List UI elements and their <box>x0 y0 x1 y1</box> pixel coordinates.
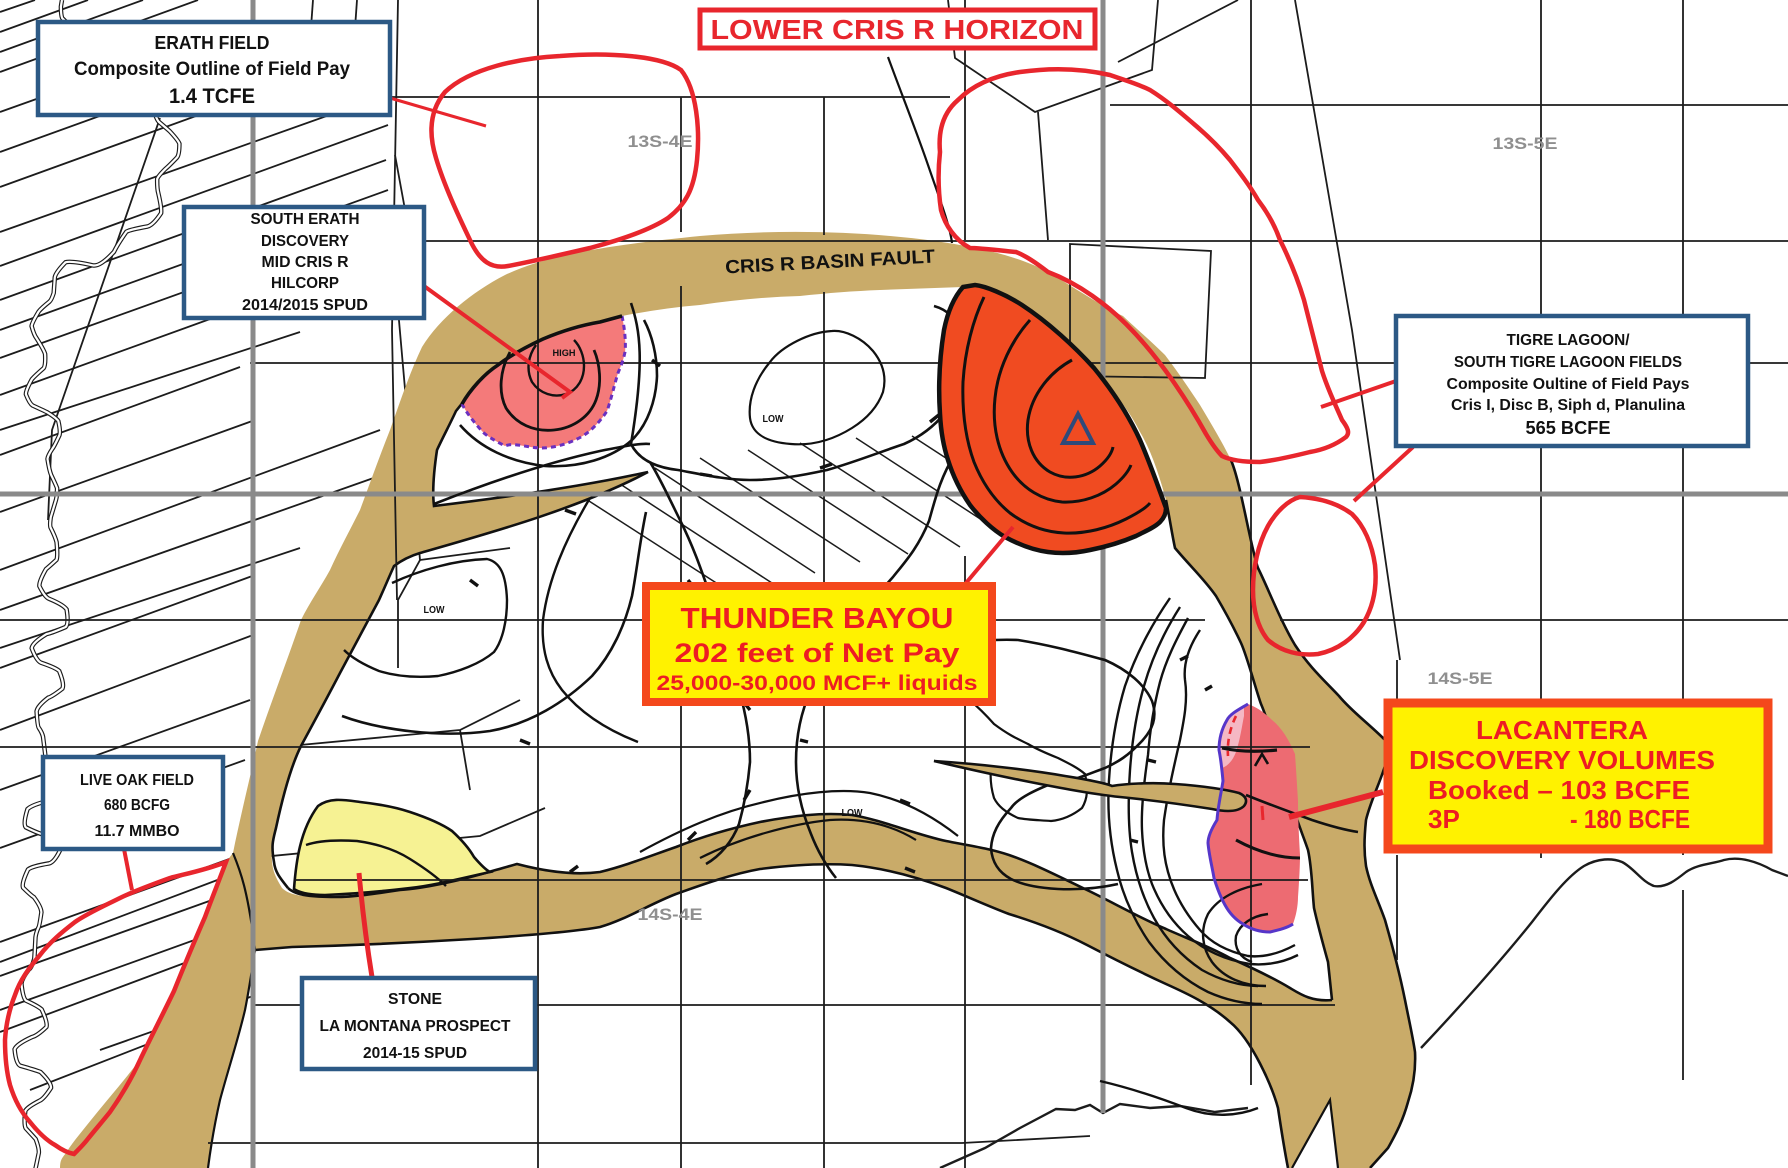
svg-text:SOUTH ERATH: SOUTH ERATH <box>251 211 360 228</box>
svg-text:TIGRE LAGOON/: TIGRE LAGOON/ <box>1507 332 1631 349</box>
svg-text:DISCOVERY VOLUMES: DISCOVERY VOLUMES <box>1409 745 1715 775</box>
svg-text:LA MONTANA PROSPECT: LA MONTANA PROSPECT <box>320 1018 511 1035</box>
svg-text:25,000-30,000 MCF+ liquids: 25,000-30,000 MCF+ liquids <box>657 672 978 695</box>
svg-text:HIGH: HIGH <box>553 348 576 358</box>
svg-text:Composite Outline of Field Pay: Composite Outline of Field Pay <box>74 59 350 80</box>
svg-text:LOW: LOW <box>763 414 785 425</box>
svg-text:13S-4E: 13S-4E <box>628 132 693 151</box>
svg-text:ERATH FIELD: ERATH FIELD <box>155 33 270 53</box>
svg-text:LACANTERA: LACANTERA <box>1476 715 1648 745</box>
svg-text:LOWER CRIS R HORIZON: LOWER CRIS R HORIZON <box>711 14 1084 45</box>
svg-text:HILCORP: HILCORP <box>271 275 339 292</box>
svg-text:14S-4E: 14S-4E <box>638 905 703 924</box>
svg-text:565 BCFE: 565 BCFE <box>1526 418 1611 438</box>
svg-text:Booked – 103 BCFE: Booked – 103 BCFE <box>1428 775 1690 805</box>
svg-text:MID CRIS R: MID CRIS R <box>262 254 349 271</box>
svg-text:LOW: LOW <box>842 808 864 819</box>
svg-text:3P: 3P <box>1428 804 1460 834</box>
svg-text:14S-5E: 14S-5E <box>1428 669 1493 688</box>
svg-text:Composite Oultine of Field Pay: Composite Oultine of Field Pays <box>1447 376 1690 393</box>
svg-text:THUNDER BAYOU: THUNDER BAYOU <box>681 603 954 635</box>
svg-text:11.7 MMBO: 11.7 MMBO <box>95 823 180 840</box>
svg-text:2014-15 SPUD: 2014-15 SPUD <box>363 1045 467 1062</box>
svg-text:- 180 BCFE: - 180 BCFE <box>1570 804 1690 834</box>
svg-text:13S-5E: 13S-5E <box>1493 134 1558 153</box>
svg-text:DISCOVERY: DISCOVERY <box>261 233 349 250</box>
svg-text:Cris I, Disc B, Siph d, Planul: Cris I, Disc B, Siph d, Planulina <box>1451 397 1685 414</box>
svg-text:SOUTH TIGRE LAGOON FIELDS: SOUTH TIGRE LAGOON FIELDS <box>1454 354 1682 371</box>
svg-text:2014/2015 SPUD: 2014/2015 SPUD <box>242 297 368 314</box>
svg-text:STONE: STONE <box>388 991 442 1008</box>
svg-text:680 BCFG: 680 BCFG <box>104 797 170 814</box>
svg-text:202 feet of Net Pay: 202 feet of Net Pay <box>675 638 960 668</box>
svg-text:LIVE OAK FIELD: LIVE OAK FIELD <box>80 772 194 789</box>
svg-text:LOW: LOW <box>424 605 446 616</box>
svg-text:1.4 TCFE: 1.4 TCFE <box>169 85 255 108</box>
